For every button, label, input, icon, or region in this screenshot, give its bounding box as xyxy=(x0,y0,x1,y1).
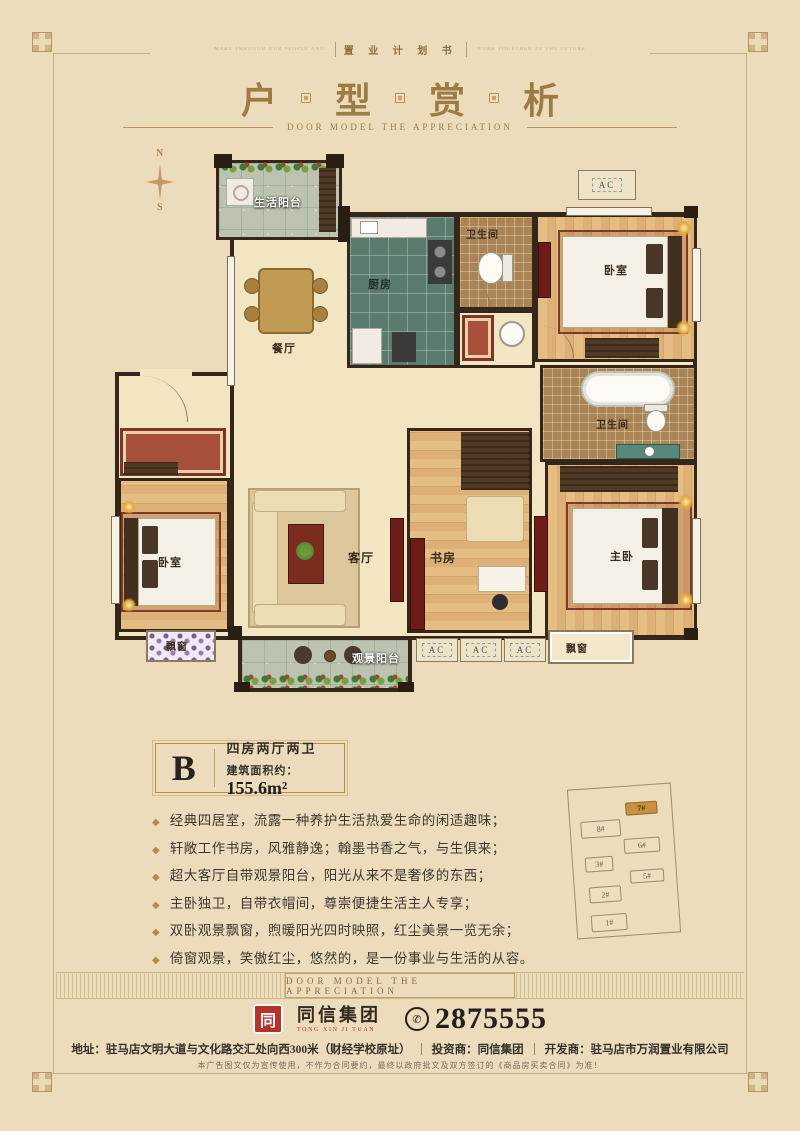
closet-dresser-icon xyxy=(560,466,678,492)
study-sofa-icon xyxy=(466,496,524,542)
desk-icon xyxy=(478,566,526,592)
ac-label: AC xyxy=(592,178,623,192)
developer-text: 开发商：驻马店市万润置业有限公司 xyxy=(545,1041,729,1057)
tv-cabinet-icon xyxy=(538,242,551,298)
bed-headboard-icon xyxy=(662,508,678,604)
vanity-basin-icon xyxy=(644,446,655,457)
site-building: 2# xyxy=(589,885,622,903)
site-building: 6# xyxy=(623,836,660,853)
site-building: 3# xyxy=(585,856,614,873)
site-building: 1# xyxy=(591,913,628,932)
console-table-icon xyxy=(124,462,178,475)
divider-band-text: DOOR MODEL THE APPRECIATION xyxy=(285,973,515,998)
tv-cabinet-icon xyxy=(390,518,404,602)
dining-chair-icon xyxy=(312,278,328,294)
wash-basin-icon xyxy=(499,321,525,347)
diamond-bullet-icon: ◆ xyxy=(152,924,160,942)
room-label-view-balcony: 观景阳台 xyxy=(352,650,400,666)
wall-block xyxy=(234,682,250,692)
planter-icon xyxy=(242,674,408,688)
sofa-icon xyxy=(252,502,278,614)
entry-door-gap xyxy=(140,369,192,376)
ac-label: AC xyxy=(466,643,497,657)
room-label-bedroom-top: 卧室 xyxy=(604,262,628,278)
room-label-kitchen: 厨房 xyxy=(368,276,392,292)
dining-table-icon xyxy=(258,268,314,334)
dining-chair-icon xyxy=(312,306,328,322)
window-icon xyxy=(111,516,120,604)
site-plan: 7# 8# 6# 3# 5# 2# 1# xyxy=(567,783,681,940)
building-label: 5# xyxy=(643,871,652,881)
address-text: 地址：驻马店文明大道与文化路交汇处向西300米（财经学校原址） xyxy=(71,1041,410,1057)
phone-group: ✆ 2875555 xyxy=(405,1002,547,1036)
building-label: 3# xyxy=(595,859,604,869)
lamp-icon xyxy=(676,220,692,236)
lamp-icon xyxy=(676,320,692,336)
balcony-cabinet-icon xyxy=(319,168,336,232)
phone-icon: ✆ xyxy=(405,1007,429,1031)
window-icon xyxy=(692,248,701,322)
footer-address-row: 地址：驻马店文明大道与文化路交汇处向西300米（财经学校原址） 投资商：同信集团… xyxy=(0,1041,800,1057)
pillow-icon xyxy=(642,518,658,548)
toilet-tank-icon xyxy=(502,254,513,282)
kitchen-sink-icon xyxy=(360,221,378,234)
brand-logo-icon: 同 xyxy=(253,1004,283,1034)
room-label-master: 主卧 xyxy=(610,548,634,564)
room-label-living: 客厅 xyxy=(348,549,374,566)
feature-item: ◆经典四居室，流露一种养护生活热爱生命的闲适趣味； xyxy=(152,814,572,832)
dining-chair-icon xyxy=(244,278,260,294)
brand-name-en: TONG XIN JI TUAN xyxy=(297,1027,381,1033)
room-label-bath-top: 卫生间 xyxy=(466,226,499,241)
tatami-platform-icon xyxy=(461,432,529,490)
ac-label: AC xyxy=(510,643,541,657)
oven-icon xyxy=(392,332,416,362)
brand-name-cn: 同信集团 xyxy=(297,1006,381,1024)
site-building: 5# xyxy=(630,868,665,883)
lamp-icon xyxy=(678,494,694,510)
pillow-icon xyxy=(646,244,663,274)
diamond-bullet-icon: ◆ xyxy=(152,952,160,970)
toilet-icon xyxy=(478,252,504,284)
feature-text: 轩敞工作书房，风雅静逸；翰墨书香之气，与生俱来； xyxy=(170,842,506,856)
building-label: 1# xyxy=(605,918,614,928)
balcony-chair-icon xyxy=(294,646,312,664)
sofa-icon xyxy=(254,604,346,626)
site-building: 8# xyxy=(580,819,621,839)
phone-number: 2875555 xyxy=(435,1002,547,1036)
room-label-bath-right: 卫生间 xyxy=(596,416,629,431)
wall-block xyxy=(214,154,232,168)
bed-headboard-icon xyxy=(668,236,682,328)
wall-block xyxy=(326,154,344,168)
wardrobe-icon xyxy=(585,338,659,358)
feature-item: ◆倚窗观景，笑傲红尘，悠然的，是一份事业与生活的从容。 xyxy=(152,952,572,970)
feature-text: 超大客厅自带观景阳台，阳光从来不是奢侈的东西； xyxy=(170,869,492,883)
plant-icon xyxy=(296,542,314,560)
pillow-icon xyxy=(646,288,663,318)
wall-block xyxy=(228,626,242,640)
room-label-service-balcony: 生活阳台 xyxy=(254,194,302,210)
ac-unit-box: AC xyxy=(504,638,546,662)
feature-text: 双卧观景飘窗，煦暖阳光四时映照，红尘美景一览无余； xyxy=(170,924,520,938)
ac-label: AC xyxy=(422,643,453,657)
feature-item: ◆主卧独卫，自带衣帽间，尊崇便捷生活主人专享； xyxy=(152,897,572,915)
lamp-icon xyxy=(122,598,136,612)
feature-text: 经典四居室，流露一种养护生活热爱生命的闲适趣味； xyxy=(170,814,506,828)
ac-unit-box: AC xyxy=(460,638,502,662)
poster-page: MAKE THROUGH OUR PEOPLE AND 置 业 计 划 书 WO… xyxy=(0,0,800,1131)
room-label-study: 书房 xyxy=(430,549,456,566)
building-label: 6# xyxy=(638,840,647,850)
tv-cabinet-icon xyxy=(534,516,548,592)
feature-item: ◆双卧观景飘窗，煦暖阳光四时映照，红尘美景一览无余； xyxy=(152,924,572,942)
footer-brand-row: 同 同信集团 TONG XIN JI TUAN ✆ 2875555 xyxy=(0,1002,800,1036)
unit-letter: B xyxy=(166,747,202,789)
ac-unit-box: AC xyxy=(578,170,636,200)
bookshelf-icon xyxy=(410,538,425,630)
disclaimer-text: 本广告图文仅为宣传使用，不作为合同要约，最终以政府批文及双方签订的《商品房买卖合… xyxy=(0,1060,800,1071)
bay-window-right xyxy=(548,630,634,664)
room-label-bay-left: 飘窗 xyxy=(166,638,188,653)
window-icon xyxy=(227,256,235,386)
fridge-icon xyxy=(352,328,382,364)
building-label: 7# xyxy=(637,803,646,813)
pillow-icon xyxy=(142,560,158,588)
building-label: 8# xyxy=(596,824,605,834)
wall-block xyxy=(338,206,350,242)
bed-headboard-icon xyxy=(124,518,138,606)
unit-layout: 四房两厅两卫 xyxy=(226,738,334,757)
window-icon xyxy=(692,518,701,604)
investor-text: 投资商：同信集团 xyxy=(432,1041,524,1057)
ac-unit-box: AC xyxy=(416,638,458,662)
lamp-icon xyxy=(122,500,136,514)
feature-item: ◆轩敞工作书房，风雅静逸；翰墨书香之气，与生俱来； xyxy=(152,842,572,860)
diamond-bullet-icon: ◆ xyxy=(152,897,160,915)
wall-block xyxy=(398,682,414,692)
diamond-bullet-icon: ◆ xyxy=(152,842,160,860)
feature-item: ◆超大客厅自带观景阳台，阳光从来不是奢侈的东西； xyxy=(152,869,572,887)
bathtub-icon xyxy=(581,371,675,407)
diamond-bullet-icon: ◆ xyxy=(152,814,160,832)
washing-machine-icon xyxy=(226,178,254,206)
divider-band: DOOR MODEL THE APPRECIATION xyxy=(56,972,744,999)
wall-block xyxy=(684,628,698,640)
unit-area-label: 建筑面积约： xyxy=(226,765,298,777)
toilet-icon xyxy=(646,410,666,432)
site-building: 7# xyxy=(625,801,658,816)
unit-area-value: 155.6m² xyxy=(226,778,287,798)
feature-text: 主卧独卫，自带衣帽间，尊崇便捷生活主人专享； xyxy=(170,897,478,911)
window-icon xyxy=(566,207,652,216)
feature-text: 倚窗观景，笑傲红尘，悠然的，是一份事业与生活的从容。 xyxy=(170,952,534,966)
feature-list: ◆经典四居室，流露一种养护生活热爱生命的闲适趣味； ◆轩敞工作书房，风雅静逸；翰… xyxy=(152,814,572,979)
stove-icon xyxy=(428,240,452,284)
room-label-bedroom-left: 卧室 xyxy=(158,554,182,570)
building-label: 2# xyxy=(601,890,610,900)
diamond-bullet-icon: ◆ xyxy=(152,869,160,887)
washer-drum-icon xyxy=(233,185,249,201)
pillow-icon xyxy=(642,560,658,590)
unit-info-box: B 四房两厅两卫 建筑面积约：155.6m² xyxy=(152,740,348,796)
address-separator xyxy=(534,1043,535,1055)
balcony-table-icon xyxy=(324,650,336,662)
dining-chair-icon xyxy=(244,306,260,322)
address-separator xyxy=(421,1043,422,1055)
pillow-icon xyxy=(142,526,158,554)
rug-icon xyxy=(462,315,494,361)
wall-block xyxy=(684,206,698,218)
room-label-bay-right: 飘窗 xyxy=(566,640,588,655)
unit-divider xyxy=(214,749,215,787)
room-label-dining: 餐厅 xyxy=(272,340,296,356)
sofa-icon xyxy=(254,490,346,512)
desk-chair-icon xyxy=(492,594,508,610)
